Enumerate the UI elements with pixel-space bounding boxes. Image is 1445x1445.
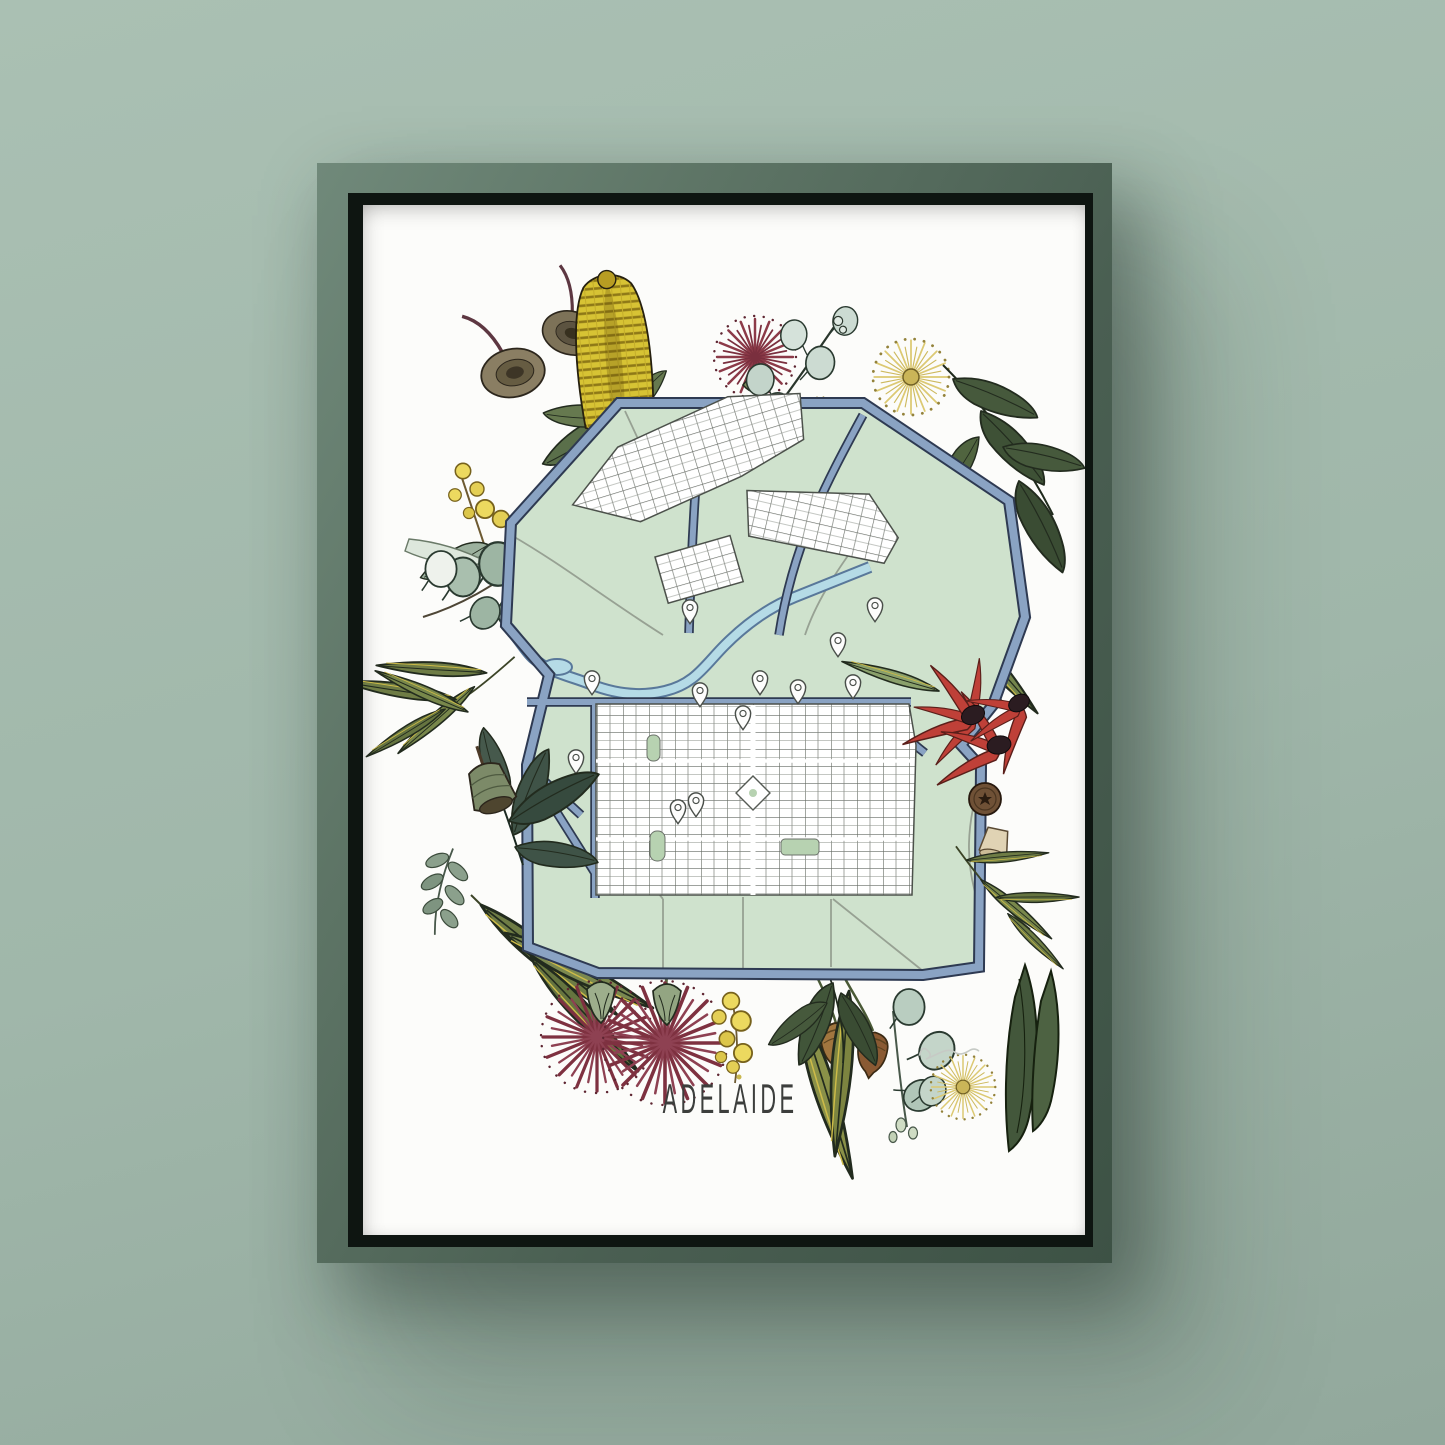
wattle-blossom-bottom-icon [712,993,752,1083]
olive-leaves-left-icon [363,636,526,762]
silver-sprig-bottom-icon [889,989,961,1143]
frame-inner-lip: ADELAIDE [348,193,1093,1247]
long-gum-leaf-right-icon [1006,965,1059,1151]
picture-frame: ADELAIDE [317,163,1112,1263]
star-gum-nut-icon [969,783,1001,815]
adelaide-cbd-street-grid [596,704,916,895]
pinnate-leaf-left-icon [412,844,474,938]
wall: ADELAIDE [0,0,1445,1445]
city-title: ADELAIDE [663,1077,798,1123]
adelaide-map-illustration: ADELAIDE [363,205,1085,1235]
adelaide-city-map [506,376,1025,975]
art-print: ADELAIDE [363,205,1085,1235]
